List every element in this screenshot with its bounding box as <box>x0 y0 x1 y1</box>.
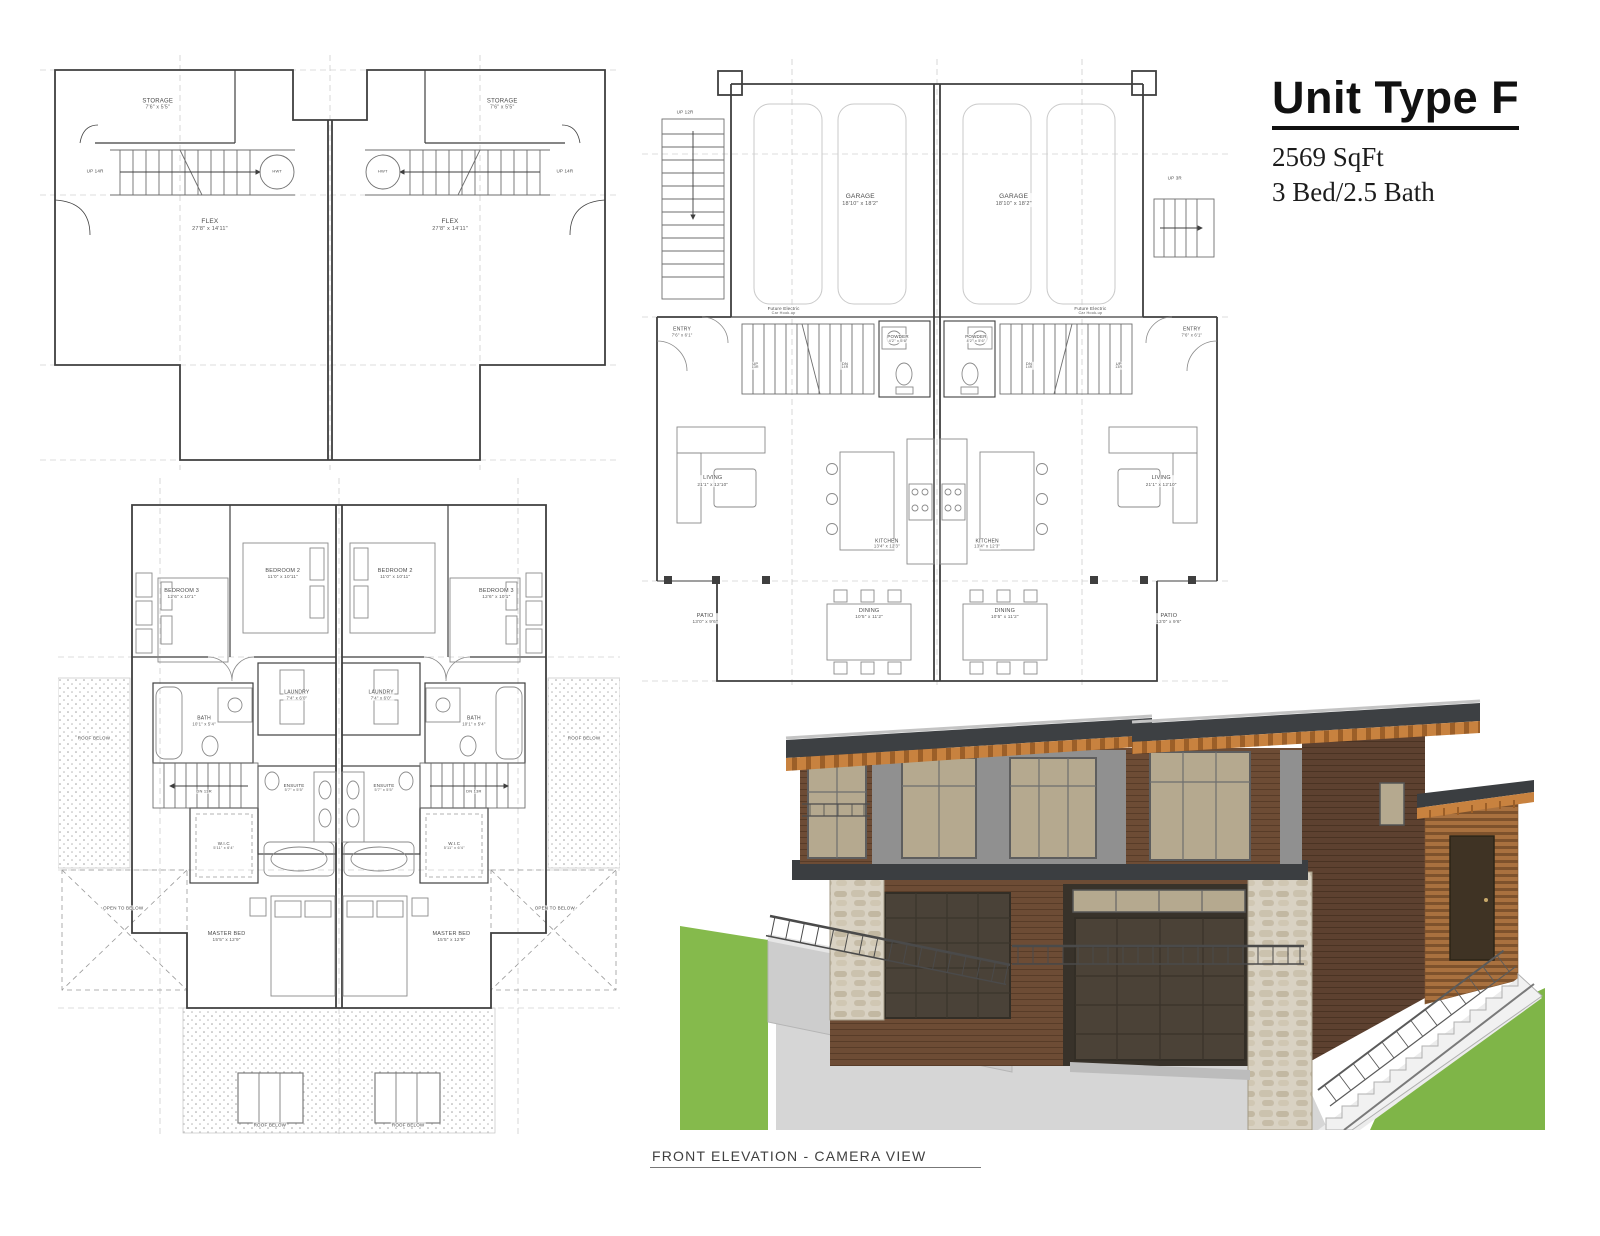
room-label: UP 3R <box>1167 175 1183 180</box>
main-floor-plan: GARAGE18'10" x 18'2"GARAGE18'10" x 18'2"… <box>642 58 1232 690</box>
room-label: STORAGE7'6" x 5'5" <box>141 98 174 111</box>
room-label: UP 12R <box>676 109 695 114</box>
room-label: FLEX27'8" x 14'11" <box>191 218 229 232</box>
room-label: DN14R <box>1025 362 1034 371</box>
room-label: UP13R <box>751 362 760 371</box>
room-label: DN 13R <box>465 789 482 794</box>
grid-lines <box>58 478 620 1138</box>
room-label: DN 13R <box>195 789 212 794</box>
room-label: GARAGE18'10" x 18'2" <box>995 193 1033 207</box>
room-label: PATIO13'0" x 9'6" <box>1155 613 1182 625</box>
render-drawing <box>680 688 1545 1130</box>
room-label: UP13R <box>1114 362 1123 371</box>
room-label: LAUNDRY7'4" x 6'0" <box>368 690 395 701</box>
room-label: Future ElectricCar Hook-up <box>767 306 801 316</box>
room-label: ENTRY7'6" x 6'1" <box>671 328 694 339</box>
room-label: MASTER BED15'5" x 12'9" <box>207 931 247 943</box>
basement-plan-drawing <box>40 55 620 470</box>
room-label: W.I.C5'11" x 6'4" <box>212 841 235 851</box>
room-label: DN14R <box>841 362 850 371</box>
room-label: ROOF BELOW <box>253 1122 288 1127</box>
room-label: GARAGE18'10" x 18'2" <box>841 193 879 207</box>
stone-pillar-right <box>1248 872 1312 1130</box>
patio-posts <box>664 576 1196 584</box>
room-label: POWDER4'2" x 5'6" <box>964 334 987 344</box>
entry-door <box>1450 836 1494 960</box>
plan-sheet: STORAGE7'6" x 5'5"STORAGE7'6" x 5'5"UP 1… <box>0 0 1600 1236</box>
room-label: UP 14R <box>86 169 105 174</box>
room-label: FLEX27'8" x 14'11" <box>431 218 469 232</box>
room-label: STORAGE7'6" x 5'5" <box>486 98 519 111</box>
unit-title: Unit Type F <box>1272 72 1519 130</box>
entry-porch <box>1417 780 1534 1004</box>
room-label: ENSUITE5'7" x 5'5" <box>283 783 306 793</box>
room-label: KITCHEN13'4" x 12'3" <box>973 539 1001 550</box>
basement-floor-plan: STORAGE7'6" x 5'5"STORAGE7'6" x 5'5"UP 1… <box>40 55 620 470</box>
room-label: POWDER4'2" x 5'6" <box>886 334 909 344</box>
room-label: BEDROOM 312'6" x 10'1" <box>163 588 200 600</box>
room-label: ROOF BELOW <box>77 735 112 740</box>
grid-lines <box>40 55 620 470</box>
room-label: HWT <box>271 170 283 175</box>
room-label: BEDROOM 312'6" x 10'1" <box>478 588 515 600</box>
exterior-stairs <box>662 119 1214 299</box>
room-label: DINING10'5" x 11'2" <box>990 608 1020 620</box>
room-label: OPEN TO BELOW <box>534 906 576 911</box>
unit-sqft: 2569 SqFt <box>1272 140 1572 175</box>
room-label: BEDROOM 211'0" x 10'11" <box>264 568 301 580</box>
room-label: BATH10'1" x 5'4" <box>461 717 486 728</box>
room-label: PATIO13'0" x 9'6" <box>691 613 718 625</box>
room-label: BEDROOM 211'0" x 10'11" <box>377 568 414 580</box>
room-label: DINING10'5" x 11'2" <box>854 608 884 620</box>
render-caption: FRONT ELEVATION - CAMERA VIEW <box>650 1148 981 1168</box>
room-label: HWT <box>377 170 389 175</box>
room-label: ROOF BELOW <box>391 1122 426 1127</box>
upper-floor-plan: BEDROOM 211'0" x 10'11"BEDROOM 211'0" x … <box>58 478 620 1138</box>
front-elevation-render <box>680 688 1545 1130</box>
building-side-wall <box>1302 730 1425 1066</box>
room-label: KITCHEN13'4" x 12'3" <box>873 539 901 550</box>
room-label: UP 14R <box>555 169 574 174</box>
title-block: Unit Type F 2569 SqFt 3 Bed/2.5 Bath <box>1272 72 1572 210</box>
room-label: LIVING21'1" x 12'10" <box>696 476 729 488</box>
room-label: LIVING21'1" x 12'10" <box>1145 476 1178 488</box>
room-label: MASTER BED15'5" x 12'9" <box>432 931 472 943</box>
unit-bedbath: 3 Bed/2.5 Bath <box>1272 175 1572 210</box>
room-label: ENSUITE5'7" x 5'5" <box>373 783 396 793</box>
side-window <box>1380 783 1404 825</box>
room-label: W.I.C5'11" x 6'4" <box>443 841 466 851</box>
room-label: ROOF BELOW <box>567 735 602 740</box>
main-plan-drawing <box>642 58 1232 690</box>
upper-plan-drawing <box>58 478 620 1138</box>
room-label: BATH10'1" x 5'4" <box>191 717 216 728</box>
room-label: Future ElectricCar Hook-up <box>1073 306 1107 316</box>
room-label: ENTRY7'6" x 6'1" <box>1180 328 1203 339</box>
room-label: OPEN TO BELOW <box>102 906 144 911</box>
room-label: LAUNDRY7'4" x 6'0" <box>283 690 310 701</box>
